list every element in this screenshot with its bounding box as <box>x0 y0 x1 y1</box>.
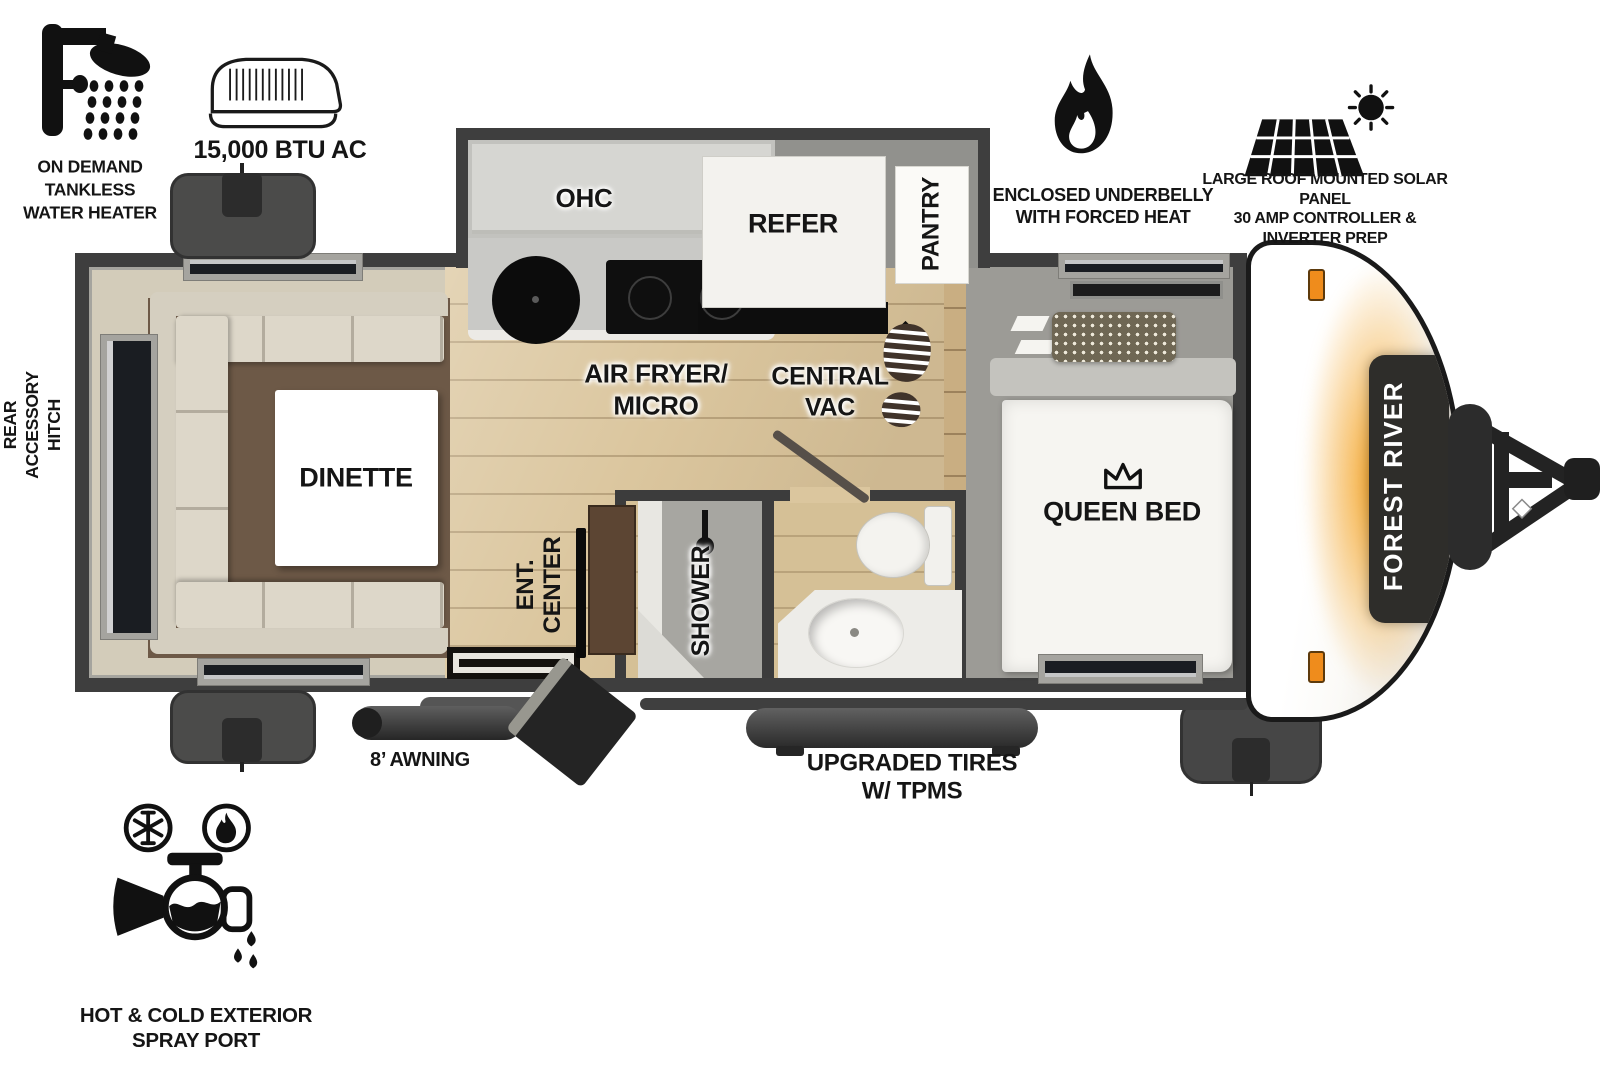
hitch-assembly <box>1420 380 1600 600</box>
shower-icon <box>28 20 156 148</box>
rear-bottom-tank-stem <box>240 762 244 772</box>
ohc-label: OHC <box>524 183 644 215</box>
window-bottom-bedroom <box>1038 654 1203 684</box>
awning-roll <box>354 706 522 740</box>
window-left <box>100 334 158 640</box>
floorplan-diagram: ON DEMAND TANKLESS WATER HEATER 15,000 B… <box>0 0 1600 1068</box>
toilet-bowl <box>856 512 930 578</box>
rooftop-ac-icon <box>198 50 350 136</box>
water-heater-label: ON DEMAND TANKLESS WATER HEATER <box>0 155 180 224</box>
sofa-cushions-bottom <box>176 582 444 628</box>
cooktop-burner-left <box>628 276 672 320</box>
crown-icon <box>1100 460 1146 494</box>
window-glass <box>204 665 363 679</box>
rear-top-tank-cap <box>222 173 262 217</box>
window-bottom-dinette <box>197 658 370 686</box>
rear-bottom-tank-cap <box>222 718 262 762</box>
refer-label: REFER <box>713 208 873 241</box>
pantry-label: PANTRY <box>916 164 945 284</box>
ent-center-cabinet <box>588 505 636 655</box>
sofa-back-bottom <box>150 628 448 654</box>
bath-faucet <box>850 628 859 637</box>
underbelly-label: ENCLOSED UNDERBELLY WITH FORCED HEAT <box>988 185 1218 229</box>
sink-drain <box>532 296 539 303</box>
window-glass <box>190 260 356 274</box>
queen-bed-label: QUEEN BED <box>1012 496 1232 529</box>
cap-marker-top <box>1308 269 1325 301</box>
window-glass <box>1045 661 1196 677</box>
bedroom-roof-vent <box>1070 281 1223 299</box>
awning-label: 8’ AWNING <box>320 748 520 772</box>
window-glass <box>107 341 151 633</box>
shower-divider-wall <box>762 501 774 678</box>
spray-port-icon <box>108 798 280 984</box>
sofa-cushions-left <box>176 316 228 612</box>
ent-center-label: ENT. CENTER <box>513 505 567 665</box>
tv-panel <box>576 528 586 658</box>
front-bottom-tank-stem <box>1250 782 1253 796</box>
tires-label: UPGRADED TIRES W/ TPMS <box>782 750 1042 807</box>
ac-label: 15,000 BTU AC <box>160 135 400 166</box>
solar-label: LARGE ROOF MOUNTED SOLAR PANEL 30 AMP CO… <box>1195 170 1455 248</box>
air-fryer-label: AIR FRYER/ MICRO <box>546 358 766 421</box>
brand-label: FOREST RIVER <box>1378 356 1410 616</box>
shower-label: SHOWER <box>686 536 717 666</box>
window-top-bedroom <box>1058 253 1230 279</box>
awning-roll-endcap <box>352 708 382 738</box>
rear-hitch-label: REAR ACCESSORY HITCH <box>0 340 66 510</box>
front-bottom-tank-cap <box>1232 738 1270 782</box>
headboard-slat-2 <box>1015 340 1058 354</box>
sofa-back-top <box>150 292 448 316</box>
queen-bed <box>1002 400 1232 672</box>
spray-port-label: HOT & COLD EXTERIOR SPRAY PORT <box>51 1003 341 1053</box>
tire-bar <box>746 708 1038 748</box>
bed-pillow <box>1052 312 1176 362</box>
dinette-label: DINETTE <box>281 462 431 495</box>
window-glass <box>1065 260 1223 272</box>
cap-marker-bottom <box>1308 651 1325 683</box>
flame-icon <box>1043 52 1131 178</box>
bed-platform-band <box>990 358 1236 396</box>
central-vac-label: CENTRAL VAC <box>755 362 905 423</box>
